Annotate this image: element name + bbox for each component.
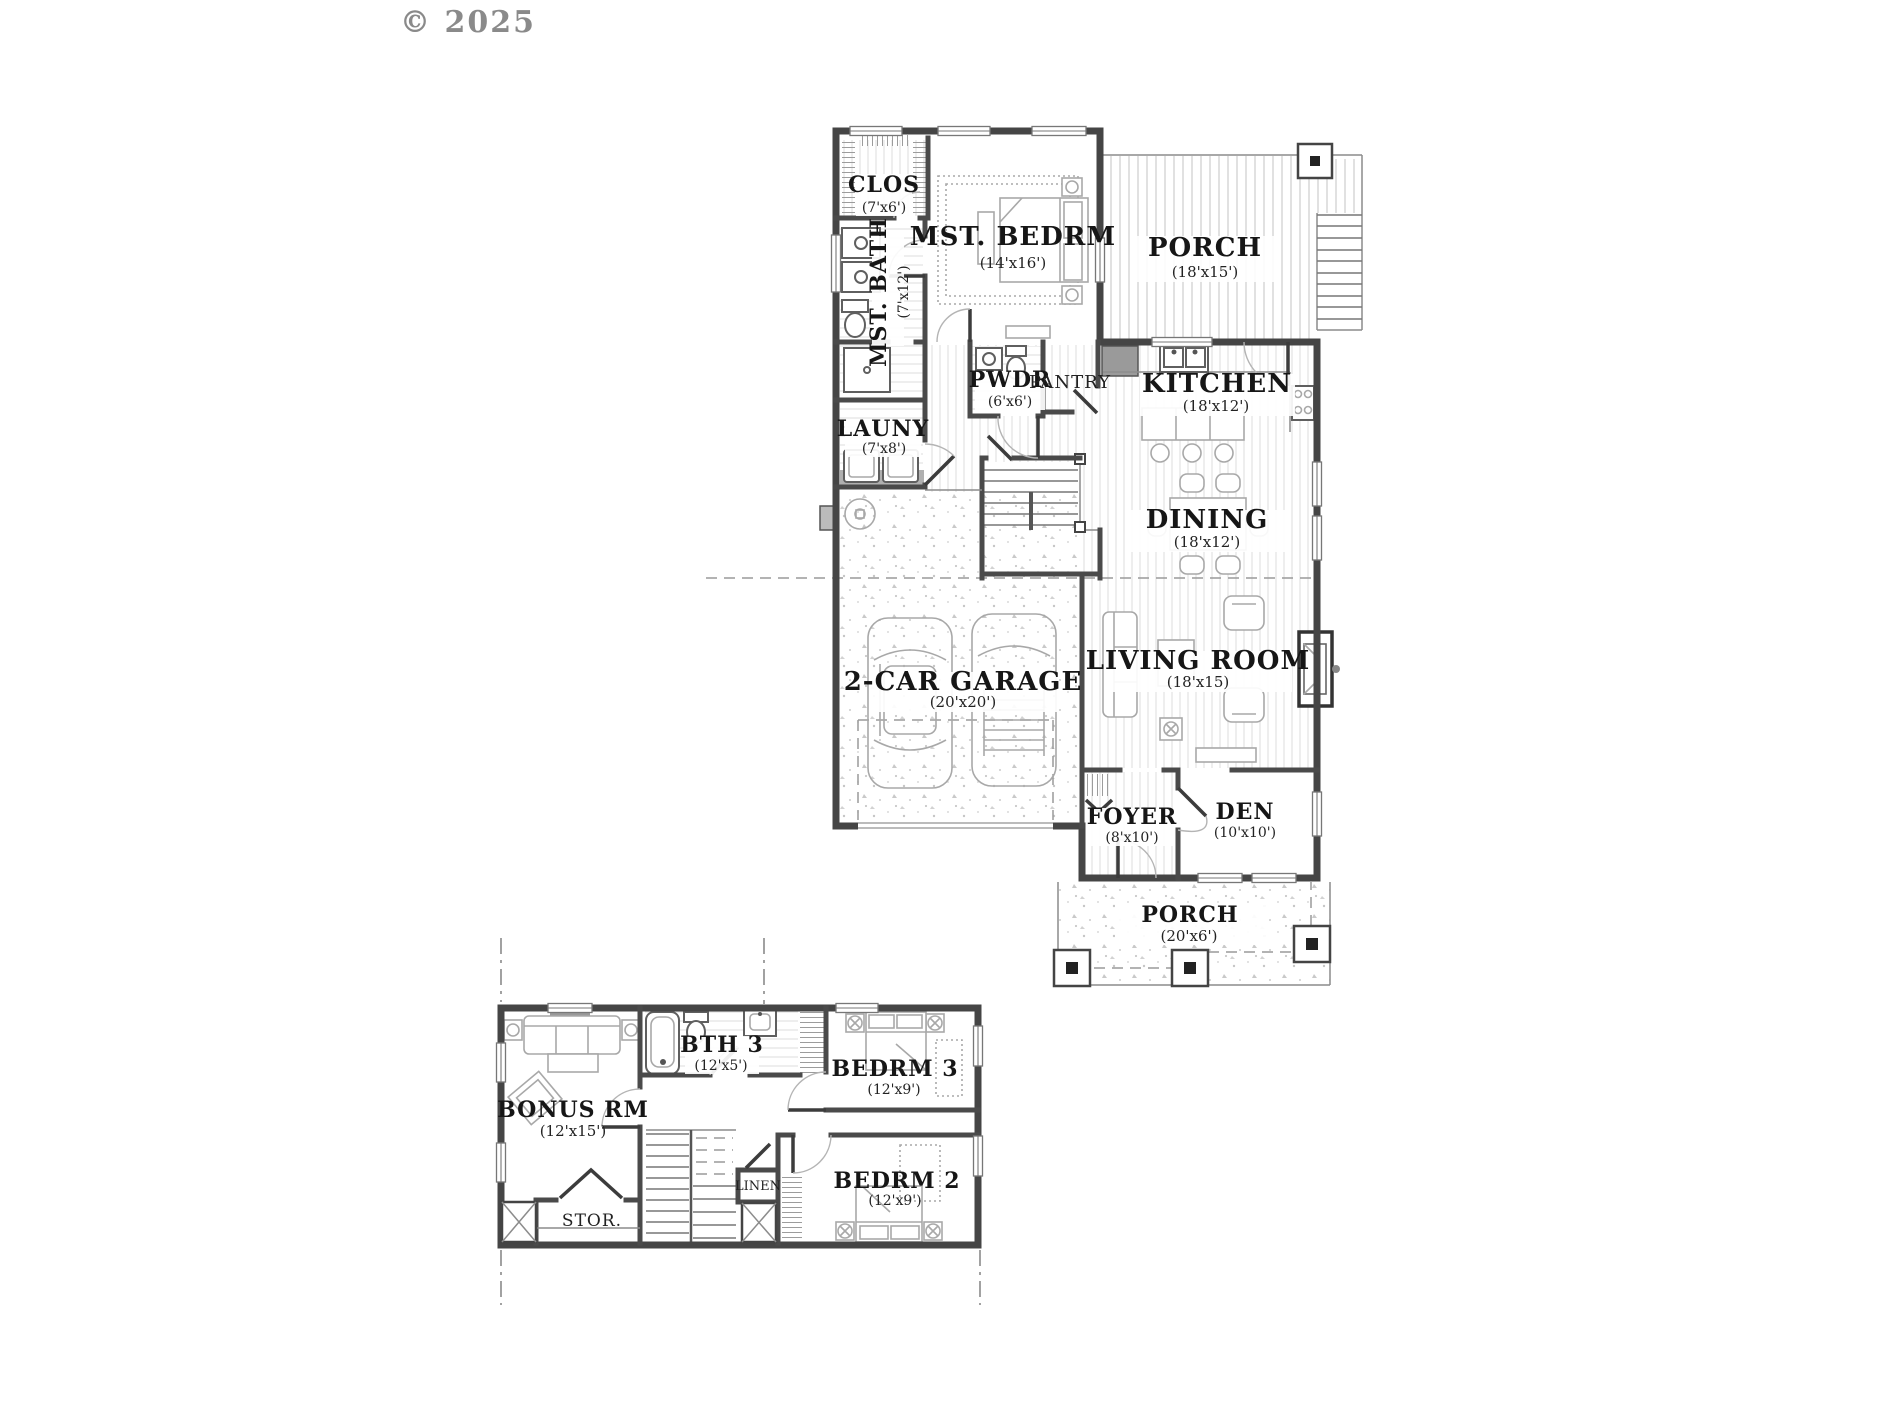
svg-text:(10'x10'): (10'x10') <box>1214 825 1276 841</box>
side-table-icon <box>504 1020 522 1040</box>
sofa-icon <box>524 1016 620 1054</box>
svg-text:STOR.: STOR. <box>562 1211 622 1231</box>
svg-text:(14'x16'): (14'x16') <box>980 254 1047 272</box>
armchair-icon <box>1224 688 1264 722</box>
nightstand-icon <box>924 1222 942 1240</box>
closet-shelves-icon <box>800 1010 826 1074</box>
svg-text:(7'x6'): (7'x6') <box>862 200 906 216</box>
porch-post-icon <box>1172 950 1208 986</box>
range-icon <box>1292 386 1314 420</box>
svg-text:(12'x9'): (12'x9') <box>868 1193 921 1209</box>
svg-text:(8'x10'): (8'x10') <box>1105 830 1158 846</box>
svg-text:(12'x15'): (12'x15') <box>540 1122 607 1140</box>
svg-text:BEDRM 3: BEDRM 3 <box>831 1056 958 1082</box>
room-label-den: DEN (10'x10') <box>1214 799 1276 841</box>
svg-text:(12'x9'): (12'x9') <box>867 1082 920 1098</box>
nightstand-icon <box>1062 178 1082 196</box>
room-label-bedrm3: BEDRM 3 (12'x9') <box>831 1056 958 1098</box>
svg-text:PORCH: PORCH <box>1141 902 1238 928</box>
svg-text:MST. BEDRM: MST. BEDRM <box>910 222 1116 252</box>
svg-text:BONUS RM: BONUS RM <box>497 1097 649 1123</box>
bench-icon <box>1006 326 1050 338</box>
svg-text:MST. BATH: MST. BATH <box>866 217 892 367</box>
svg-text:FOYER: FOYER <box>1087 804 1178 830</box>
console-icon <box>1196 748 1256 762</box>
svg-text:CLOS: CLOS <box>848 172 920 198</box>
svg-text:(18'x15): (18'x15) <box>1167 673 1229 691</box>
svg-text:LAUNY: LAUNY <box>837 416 930 442</box>
toilet-icon <box>842 300 868 337</box>
svg-text:LINEN: LINEN <box>735 1179 781 1194</box>
svg-text:PORCH: PORCH <box>1148 233 1262 263</box>
coffee-table-icon <box>548 1054 598 1072</box>
nightstand-icon <box>846 1014 864 1032</box>
svg-text:BTH 3: BTH 3 <box>680 1032 764 1058</box>
upper-stairs <box>646 1130 736 1243</box>
porch-post-icon <box>1054 950 1090 986</box>
room-label-pantry: PANTRY <box>1029 372 1111 393</box>
closet-rod-icon <box>782 1177 802 1243</box>
svg-text:(6'x6'): (6'x6') <box>988 394 1032 410</box>
svg-text:(18'x12'): (18'x12') <box>1174 533 1241 551</box>
svg-text:(20'x6'): (20'x6') <box>1160 927 1217 945</box>
nightstand-icon <box>836 1222 854 1240</box>
porch-post-icon <box>1298 144 1332 178</box>
svg-text:(20'x20'): (20'x20') <box>930 693 997 711</box>
room-label-bonus: BONUS RM (12'x15') <box>497 1097 649 1140</box>
chase-box-icon <box>742 1203 776 1242</box>
svg-text:DEN: DEN <box>1216 799 1275 825</box>
room-label-linen: LINEN <box>735 1179 781 1194</box>
porch-post-icon <box>1294 926 1330 962</box>
porch-stairs <box>1317 215 1362 319</box>
coat-closet-icon <box>1086 774 1112 796</box>
svg-text:(7'x12'): (7'x12') <box>896 265 912 318</box>
floor-plan-page: CLOS (7'x6') MST. BATH (7'x12') MST. BED… <box>0 0 1877 1408</box>
svg-text:(7'x8'): (7'x8') <box>862 441 906 457</box>
chase-box-icon <box>502 1202 536 1242</box>
side-table-icon <box>622 1020 640 1040</box>
floor-plan-svg: CLOS (7'x6') MST. BATH (7'x12') MST. BED… <box>0 0 1877 1408</box>
nightstand-icon <box>926 1014 944 1032</box>
svg-text:BEDRM 2: BEDRM 2 <box>833 1168 960 1194</box>
room-label-stor: STOR. <box>562 1211 622 1231</box>
svg-text:(12'x5'): (12'x5') <box>694 1058 747 1074</box>
svg-text:PANTRY: PANTRY <box>1029 372 1111 393</box>
island-icon <box>1142 408 1244 462</box>
svg-text:LIVING ROOM: LIVING ROOM <box>1086 646 1310 676</box>
tub-icon <box>646 1012 679 1074</box>
kitchen-sink-icon <box>1160 344 1208 372</box>
closet-rod-icon <box>858 135 912 146</box>
svg-text:(18'x15'): (18'x15') <box>1172 263 1239 281</box>
svg-text:DINING: DINING <box>1146 505 1269 535</box>
room-label-bedrm2: BEDRM 2 (12'x9') <box>833 1168 960 1209</box>
armchair-icon <box>1224 596 1264 630</box>
side-table-icon <box>1160 718 1182 740</box>
copyright-text: © 2025 <box>400 5 536 40</box>
svg-text:(18'x12'): (18'x12') <box>1183 397 1250 415</box>
nightstand-icon <box>1062 286 1082 304</box>
svg-text:KITCHEN: KITCHEN <box>1142 369 1292 399</box>
